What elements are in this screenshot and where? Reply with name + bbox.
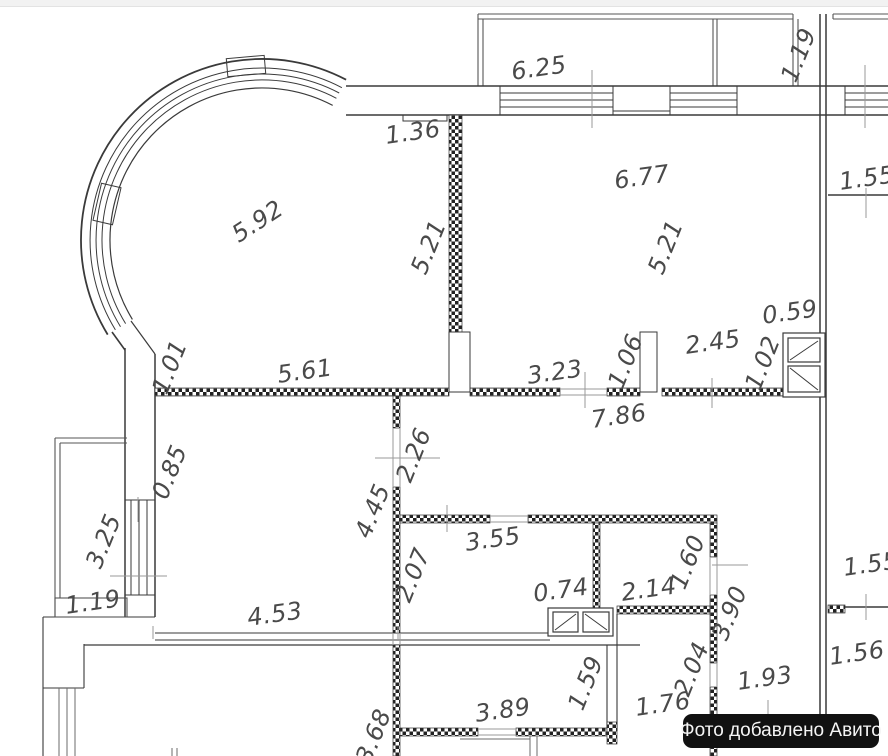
dim-label: 6.25 bbox=[509, 50, 568, 85]
dim-label: 0.59 bbox=[760, 294, 819, 329]
dim-label: 3.23 bbox=[525, 354, 584, 389]
dim-label: 5.21 bbox=[405, 216, 452, 278]
dim-label: 6.77 bbox=[612, 159, 671, 194]
floor-plan-page: 5.921.366.251.196.771.555.215.210.592.45… bbox=[0, 0, 888, 756]
dim-label: 1.93 bbox=[735, 660, 794, 695]
dim-label: 5.61 bbox=[275, 353, 334, 388]
dim-label: 7.86 bbox=[589, 398, 648, 433]
dim-label: 3.55 bbox=[463, 521, 522, 556]
door-openings bbox=[393, 389, 717, 735]
floor-plan-drawing: 5.921.366.251.196.771.555.215.210.592.45… bbox=[0, 0, 888, 756]
dim-label: 4.53 bbox=[245, 596, 304, 631]
dim-label: 1.56 bbox=[827, 635, 886, 670]
dim-label: 1.36 bbox=[383, 114, 442, 149]
dim-label: 1.55 bbox=[837, 160, 888, 195]
dim-label: 4.45 bbox=[349, 480, 396, 542]
dim-label: 1.19 bbox=[63, 584, 122, 619]
watermark-badge: Фото добавлено Авито bbox=[683, 714, 879, 748]
dim-label: 0.85 bbox=[146, 441, 193, 503]
top-wall-windows bbox=[500, 86, 888, 115]
dim-label: 5.92 bbox=[227, 194, 289, 248]
dim-label: 2.26 bbox=[390, 424, 437, 486]
dim-label: 0.74 bbox=[531, 572, 590, 607]
dim-label: 1.55 bbox=[841, 546, 888, 581]
dim-label: 1.59 bbox=[562, 652, 609, 714]
left-wall-window bbox=[125, 500, 155, 595]
dim-label: 5.21 bbox=[642, 216, 689, 278]
dim-label: 2.45 bbox=[683, 324, 742, 359]
dim-label: 1.19 bbox=[775, 24, 822, 86]
dim-label: 3.68 bbox=[350, 705, 397, 756]
bay-window-arc bbox=[81, 55, 346, 354]
dim-label: 3.25 bbox=[80, 510, 127, 572]
dim-label: 2.14 bbox=[619, 571, 678, 606]
dim-label: 1.76 bbox=[633, 686, 692, 721]
lower-left-window bbox=[59, 688, 75, 756]
dim-label: 3.89 bbox=[473, 692, 532, 727]
dim-label: 1.02 bbox=[739, 332, 786, 394]
